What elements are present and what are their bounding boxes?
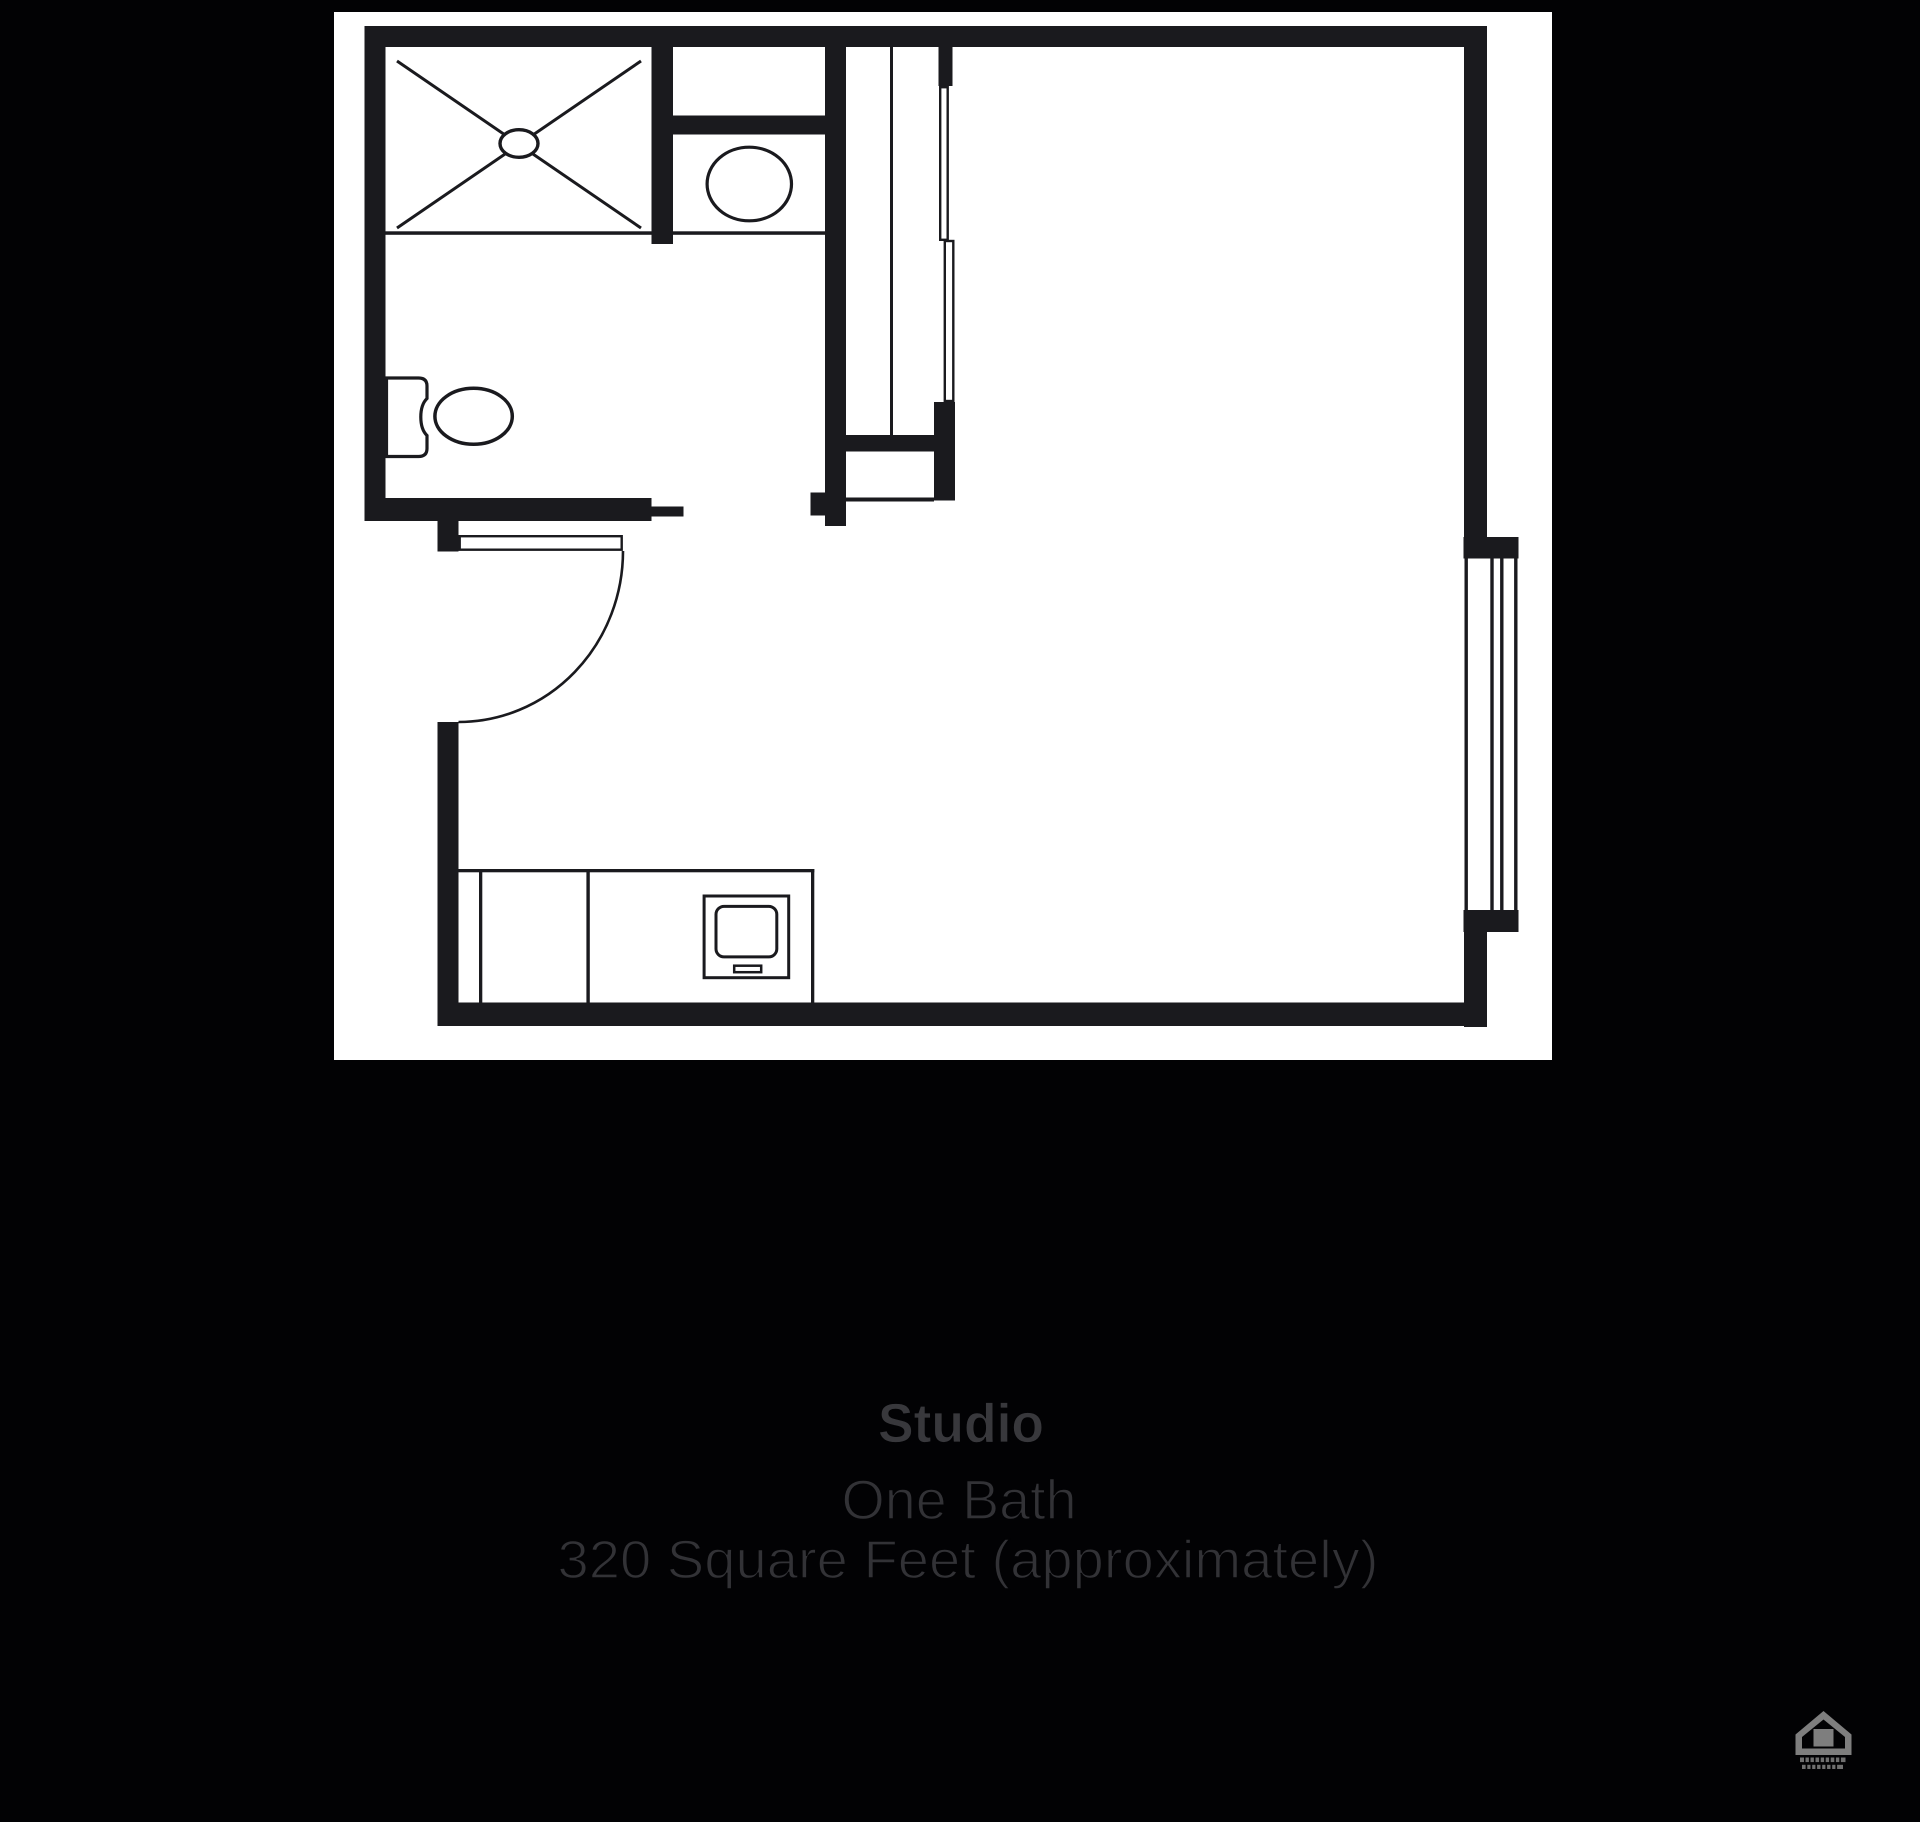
svg-text:Studio: Studio bbox=[878, 1392, 1044, 1454]
svg-text:320 Square Feet (approximately: 320 Square Feet (approximately) bbox=[558, 1530, 1379, 1590]
svg-text:One Bath: One Bath bbox=[842, 1468, 1077, 1531]
